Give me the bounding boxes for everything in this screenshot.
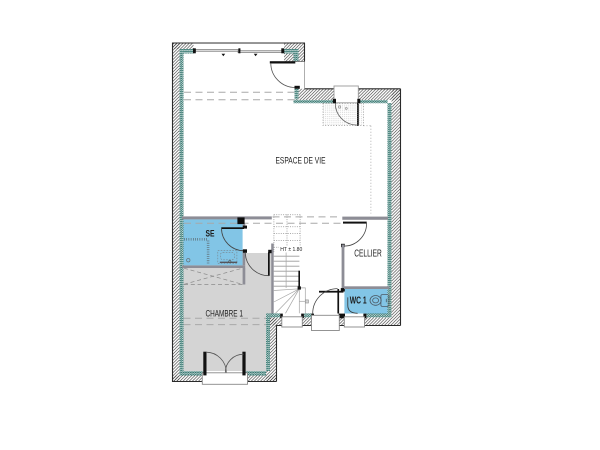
svg-text:CHAMBRE 1: CHAMBRE 1 bbox=[205, 309, 243, 320]
svg-text:ESPACE DE VIE: ESPACE DE VIE bbox=[276, 156, 326, 167]
svg-text:CELLIER: CELLIER bbox=[354, 248, 382, 259]
svg-text:WC 1: WC 1 bbox=[350, 296, 367, 307]
svg-text:SE: SE bbox=[206, 229, 215, 240]
svg-text:HT ± 1.80: HT ± 1.80 bbox=[280, 247, 302, 253]
